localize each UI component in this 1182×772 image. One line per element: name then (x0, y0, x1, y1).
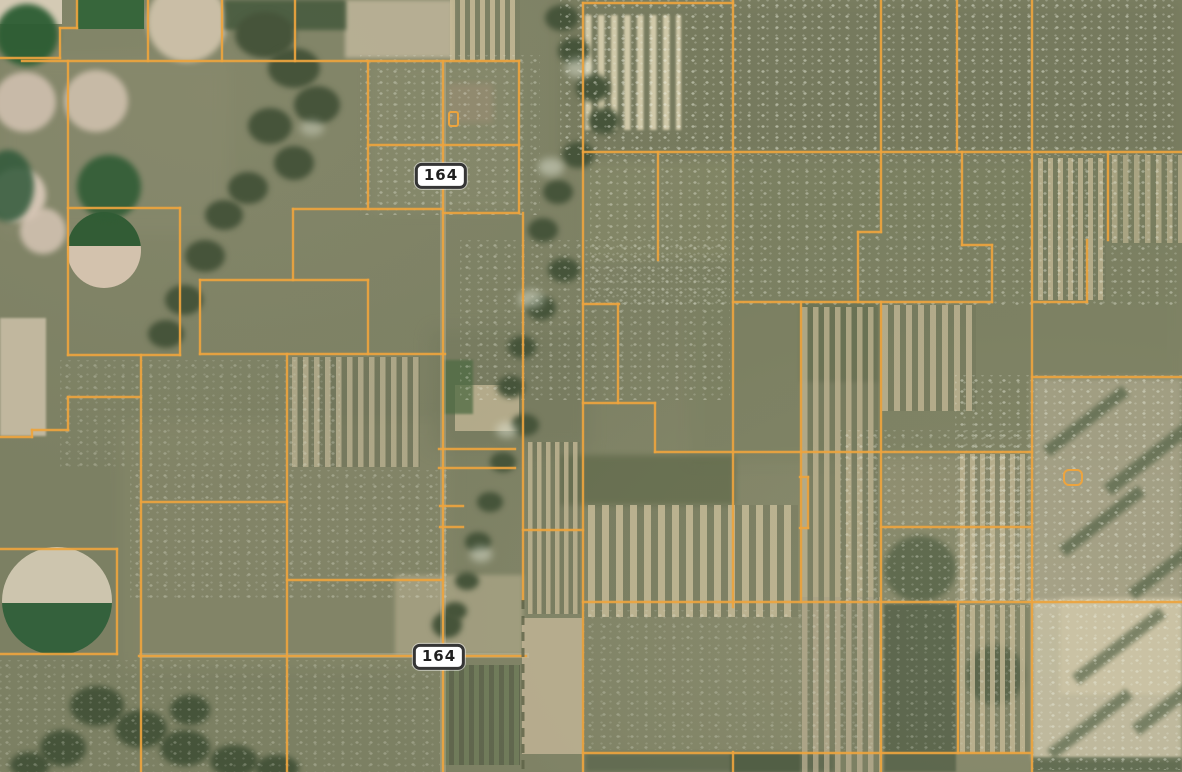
satellite-map-canvas[interactable]: 164 164 (0, 0, 1182, 772)
terrain-speckle (583, 610, 1023, 750)
route-number: 164 (422, 648, 456, 665)
terrain-pivot-field (20, 208, 66, 254)
terrain-trees (205, 200, 243, 230)
terrain-imagery-layer (0, 0, 1182, 772)
terrain-scrub (560, 455, 735, 505)
terrain-pivot-field-green (77, 155, 141, 219)
terrain-fallow-field (522, 618, 582, 754)
terrain-bare-wash (538, 158, 564, 176)
terrain-speckle (0, 660, 440, 772)
terrain-pivot-field (64, 70, 128, 132)
terrain-trees (432, 612, 462, 638)
terrain-speckle (360, 55, 540, 215)
terrain-speckle (560, 0, 1180, 155)
terrain-bare-wash (300, 120, 324, 136)
terrain-canyon-trees (490, 452, 516, 472)
terrain-trees (165, 285, 203, 315)
terrain-strip-crop (444, 665, 520, 765)
terrain-pivot-field-split (2, 547, 112, 655)
terrain-trees (274, 146, 314, 180)
terrain-canyon-trees (528, 218, 558, 242)
terrain-speckle (840, 430, 1040, 605)
terrain-trees (294, 86, 340, 124)
terrain-canyon-trees (543, 180, 573, 204)
terrain-bare-wash (496, 422, 518, 438)
highway-route-shield: 164 (415, 163, 467, 189)
terrain-pivot-field-split (67, 212, 141, 288)
terrain-strip-crop (450, 0, 520, 60)
terrain-trees (248, 108, 292, 144)
highway-route-shield: 164 (413, 644, 465, 670)
terrain-canyon-trees (477, 492, 503, 512)
terrain-strip-crop (588, 505, 798, 617)
terrain-trees (268, 48, 320, 88)
terrain-bare-wash (470, 546, 492, 562)
terrain-trees (185, 240, 225, 272)
terrain-crop-field-green (77, 0, 144, 29)
terrain-fallow-field (0, 318, 46, 436)
terrain-canyon-trees (455, 572, 479, 590)
terrain-speckle (460, 240, 730, 400)
terrain-speckle (1032, 600, 1182, 770)
terrain-road-surface (139, 653, 529, 658)
terrain-strip-crop (528, 442, 580, 614)
terrain-trees (148, 320, 184, 348)
terrain-speckle (130, 470, 450, 600)
terrain-pivot-field (147, 0, 227, 62)
terrain-speckle (60, 360, 340, 470)
terrain-trees (228, 172, 268, 204)
route-number: 164 (424, 167, 458, 184)
terrain-scrub (730, 753, 800, 772)
terrain-fallow-field (345, 0, 453, 58)
